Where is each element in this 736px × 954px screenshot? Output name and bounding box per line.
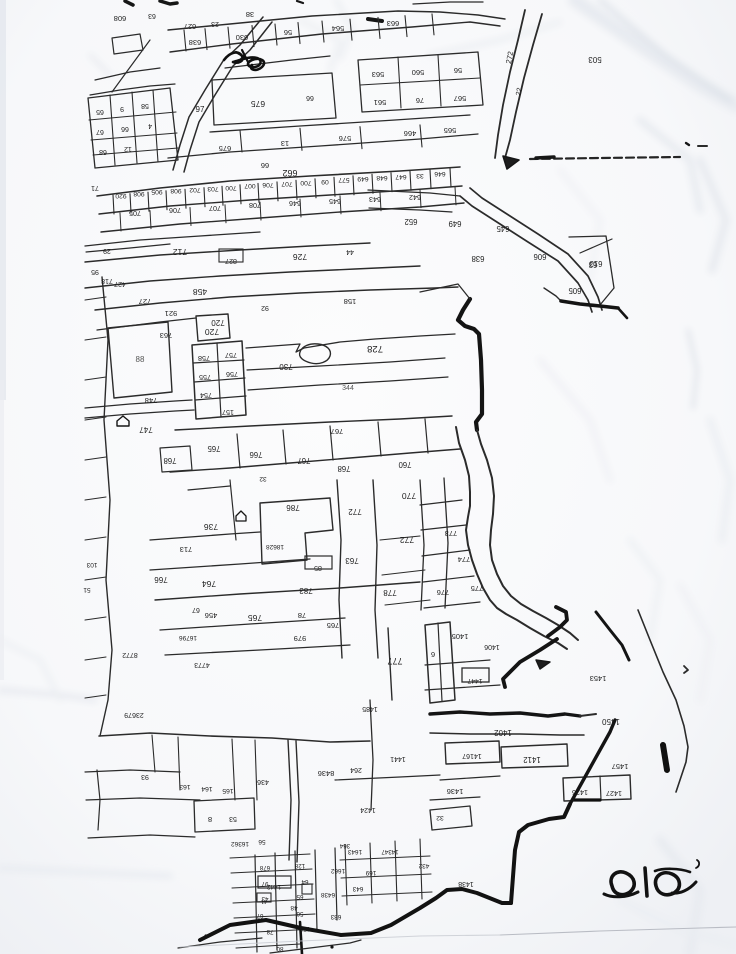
svg-text:706: 706 xyxy=(262,181,274,188)
svg-text:645: 645 xyxy=(329,197,341,206)
svg-text:770: 770 xyxy=(402,491,416,501)
svg-text:706: 706 xyxy=(169,206,181,215)
svg-text:164: 164 xyxy=(201,785,213,792)
svg-text:58: 58 xyxy=(141,102,149,109)
svg-text:827: 827 xyxy=(225,257,237,264)
svg-text:563: 563 xyxy=(372,70,385,79)
svg-text:707: 707 xyxy=(281,180,293,187)
svg-text:705: 705 xyxy=(129,209,141,218)
svg-text:606: 606 xyxy=(533,252,546,261)
svg-text:703: 703 xyxy=(207,185,219,192)
svg-text:643: 643 xyxy=(352,885,363,892)
svg-text:71: 71 xyxy=(91,184,99,191)
svg-text:169: 169 xyxy=(365,869,376,876)
svg-text:264: 264 xyxy=(350,766,362,773)
svg-text:32: 32 xyxy=(436,814,444,821)
svg-text:720: 720 xyxy=(205,327,219,337)
svg-text:577: 577 xyxy=(338,176,350,183)
svg-text:23679: 23679 xyxy=(124,711,144,718)
svg-text:503: 503 xyxy=(588,55,602,64)
svg-text:920: 920 xyxy=(115,192,127,199)
svg-text:772: 772 xyxy=(400,535,414,545)
svg-text:56: 56 xyxy=(284,28,292,37)
svg-text:51: 51 xyxy=(83,586,91,593)
svg-text:78: 78 xyxy=(298,611,306,620)
svg-text:642: 642 xyxy=(409,193,421,202)
svg-text:1406: 1406 xyxy=(484,643,500,650)
svg-text:53: 53 xyxy=(229,815,237,822)
svg-text:14347: 14347 xyxy=(381,848,399,855)
svg-text:747: 747 xyxy=(139,425,153,434)
svg-text:63: 63 xyxy=(148,12,156,19)
svg-text:67: 67 xyxy=(96,128,104,135)
svg-text:921: 921 xyxy=(165,309,178,318)
svg-text:67: 67 xyxy=(192,606,200,613)
svg-text:158: 158 xyxy=(344,297,357,306)
svg-text:436: 436 xyxy=(257,778,269,785)
svg-text:165: 165 xyxy=(222,787,234,794)
svg-text:700: 700 xyxy=(300,179,312,186)
svg-text:773: 773 xyxy=(445,529,458,538)
svg-text:646: 646 xyxy=(434,170,446,177)
svg-text:638: 638 xyxy=(189,38,202,47)
svg-text:560: 560 xyxy=(412,68,425,77)
svg-text:78: 78 xyxy=(266,928,273,935)
svg-text:1453: 1453 xyxy=(590,674,607,683)
svg-text:608: 608 xyxy=(114,14,127,23)
svg-text:755: 755 xyxy=(199,373,211,382)
svg-text:730: 730 xyxy=(279,362,293,371)
svg-text:700: 700 xyxy=(225,184,237,191)
svg-text:157: 157 xyxy=(222,408,234,417)
svg-text:561: 561 xyxy=(374,98,387,107)
svg-text:648: 648 xyxy=(376,174,388,181)
svg-text:702: 702 xyxy=(189,186,201,193)
svg-text:29: 29 xyxy=(103,247,111,254)
svg-text:763: 763 xyxy=(160,331,173,340)
svg-text:633: 633 xyxy=(330,913,341,920)
svg-text:38: 38 xyxy=(246,10,254,19)
svg-text:645: 645 xyxy=(496,224,510,233)
svg-text:564: 564 xyxy=(332,24,345,33)
svg-text:768: 768 xyxy=(337,464,350,473)
svg-text:576: 576 xyxy=(339,134,352,143)
svg-text:1436: 1436 xyxy=(447,787,464,796)
svg-text:1442: 1442 xyxy=(266,883,281,890)
svg-text:41: 41 xyxy=(261,898,267,904)
svg-text:772: 772 xyxy=(348,507,362,516)
svg-text:662: 662 xyxy=(282,168,297,178)
svg-text:765: 765 xyxy=(207,444,221,453)
svg-text:774: 774 xyxy=(458,555,471,564)
svg-text:786: 786 xyxy=(286,503,300,512)
svg-text:364: 364 xyxy=(339,842,350,849)
svg-text:97: 97 xyxy=(196,105,205,114)
svg-text:675: 675 xyxy=(251,99,265,109)
svg-text:66: 66 xyxy=(261,161,269,170)
svg-text:4773: 4773 xyxy=(194,661,210,668)
svg-text:754: 754 xyxy=(200,391,212,400)
svg-text:627: 627 xyxy=(184,22,197,31)
svg-text:663: 663 xyxy=(387,19,400,28)
svg-text:908: 908 xyxy=(170,187,182,194)
svg-text:678: 678 xyxy=(259,864,270,871)
svg-text:66: 66 xyxy=(306,94,314,101)
svg-text:1438: 1438 xyxy=(458,880,474,887)
svg-text:1662: 1662 xyxy=(330,867,345,874)
svg-text:643: 643 xyxy=(369,195,381,204)
svg-text:8436: 8436 xyxy=(318,769,335,778)
svg-text:6: 6 xyxy=(431,650,435,659)
svg-text:33: 33 xyxy=(416,172,424,179)
svg-text:649: 649 xyxy=(357,175,369,182)
svg-text:432: 432 xyxy=(418,862,429,869)
svg-text:756: 756 xyxy=(226,370,238,379)
svg-text:163: 163 xyxy=(179,783,191,790)
svg-text:16796: 16796 xyxy=(179,634,197,641)
svg-text:748: 748 xyxy=(145,396,158,405)
svg-text:427: 427 xyxy=(114,280,126,287)
svg-text:66: 66 xyxy=(121,125,129,132)
svg-text:48: 48 xyxy=(290,904,298,911)
svg-text:767: 767 xyxy=(331,427,344,436)
svg-text:766: 766 xyxy=(249,450,262,459)
svg-text:646: 646 xyxy=(289,199,301,208)
svg-text:56: 56 xyxy=(258,838,266,845)
svg-text:760: 760 xyxy=(398,460,412,469)
svg-text:765: 765 xyxy=(248,613,262,623)
svg-text:764: 764 xyxy=(202,579,216,589)
svg-text:765: 765 xyxy=(327,621,340,630)
svg-text:1441: 1441 xyxy=(390,755,406,762)
svg-text:720: 720 xyxy=(211,318,225,327)
svg-text:6438: 6438 xyxy=(320,891,335,898)
svg-text:007: 007 xyxy=(244,182,256,189)
svg-text:652: 652 xyxy=(404,217,417,226)
svg-text:85: 85 xyxy=(314,564,322,571)
svg-text:56: 56 xyxy=(454,66,462,75)
svg-text:9: 9 xyxy=(120,105,124,112)
svg-text:567: 567 xyxy=(454,94,467,103)
svg-text:92: 92 xyxy=(261,304,269,311)
svg-text:726: 726 xyxy=(293,252,307,262)
svg-text:13: 13 xyxy=(281,139,289,148)
svg-text:1424: 1424 xyxy=(360,806,376,813)
svg-text:1427: 1427 xyxy=(606,789,622,798)
svg-text:776: 776 xyxy=(437,588,450,597)
svg-text:95: 95 xyxy=(91,268,99,275)
svg-text:14167: 14167 xyxy=(462,752,482,759)
svg-text:1450: 1450 xyxy=(602,717,620,726)
svg-text:905: 905 xyxy=(151,188,163,195)
svg-text:713: 713 xyxy=(180,545,193,554)
svg-text:778: 778 xyxy=(383,588,397,597)
svg-text:728: 728 xyxy=(367,343,383,354)
svg-text:128: 128 xyxy=(294,862,305,869)
svg-text:4: 4 xyxy=(148,122,152,129)
svg-text:1412: 1412 xyxy=(523,755,540,764)
svg-text:344: 344 xyxy=(342,385,354,392)
svg-text:63: 63 xyxy=(589,260,598,269)
svg-text:783: 783 xyxy=(299,586,313,595)
svg-text:68: 68 xyxy=(99,148,107,155)
svg-text:757: 757 xyxy=(225,351,237,360)
svg-text:736: 736 xyxy=(204,522,218,532)
svg-text:605: 605 xyxy=(568,286,582,295)
svg-text:768: 768 xyxy=(163,456,176,465)
svg-text:707: 707 xyxy=(209,204,221,213)
svg-text:09: 09 xyxy=(321,178,329,185)
svg-text:93: 93 xyxy=(141,773,149,780)
svg-text:1485: 1485 xyxy=(362,705,378,712)
svg-text:12: 12 xyxy=(124,145,132,152)
svg-text:456: 456 xyxy=(205,611,218,620)
svg-text:718: 718 xyxy=(101,277,113,284)
svg-text:1405: 1405 xyxy=(452,632,469,641)
svg-text:466: 466 xyxy=(404,129,417,138)
svg-text:565: 565 xyxy=(444,126,457,135)
svg-text:1402: 1402 xyxy=(494,728,512,737)
svg-text:76: 76 xyxy=(416,96,424,105)
svg-text:767: 767 xyxy=(297,456,310,465)
svg-text:88: 88 xyxy=(136,355,145,364)
svg-text:758: 758 xyxy=(198,354,210,363)
svg-text:908: 908 xyxy=(133,190,145,197)
svg-text:1457: 1457 xyxy=(612,762,629,771)
svg-text:979: 979 xyxy=(294,634,307,643)
svg-text:712: 712 xyxy=(173,247,187,257)
svg-text:44: 44 xyxy=(346,248,354,255)
svg-text:649: 649 xyxy=(448,219,461,228)
svg-text:32: 32 xyxy=(259,475,267,482)
svg-text:16362: 16362 xyxy=(231,840,249,847)
svg-text:8: 8 xyxy=(208,815,212,824)
svg-text:775: 775 xyxy=(471,584,484,593)
svg-text:708: 708 xyxy=(249,201,261,210)
svg-text:638: 638 xyxy=(471,254,484,263)
svg-text:777: 777 xyxy=(387,656,402,666)
svg-text:65: 65 xyxy=(96,108,104,115)
svg-text:8772: 8772 xyxy=(122,651,138,658)
svg-text:675: 675 xyxy=(219,144,232,153)
svg-text:67: 67 xyxy=(256,912,263,919)
svg-text:103: 103 xyxy=(86,561,97,568)
svg-text:647: 647 xyxy=(395,173,407,180)
svg-text:763: 763 xyxy=(345,556,359,565)
svg-text:1447: 1447 xyxy=(467,677,482,684)
svg-text:766: 766 xyxy=(154,575,168,584)
svg-text:458: 458 xyxy=(193,287,207,297)
svg-text:18628: 18628 xyxy=(266,543,284,550)
